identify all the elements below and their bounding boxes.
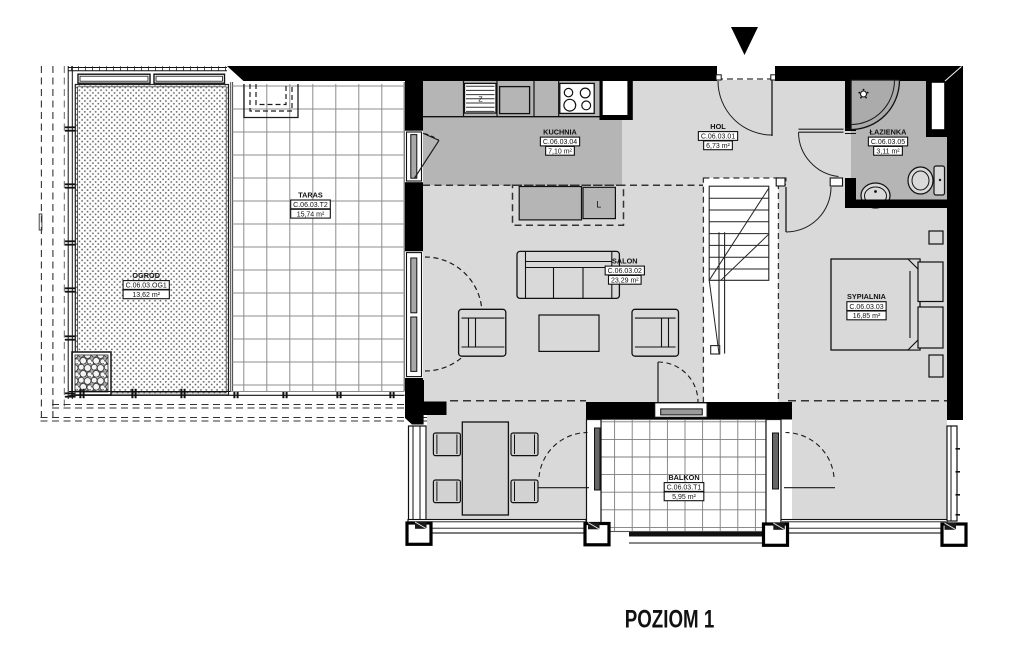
svg-text:C.06.03.OG1: C.06.03.OG1 <box>126 283 167 290</box>
svg-text:Z: Z <box>478 97 483 104</box>
svg-text:7,10 m²: 7,10 m² <box>548 149 572 156</box>
svg-text:C.06.03.T1: C.06.03.T1 <box>667 485 702 492</box>
svg-text:SALON: SALON <box>612 257 638 266</box>
svg-text:5,95 m²: 5,95 m² <box>672 494 696 501</box>
svg-text:3,11 m²: 3,11 m² <box>876 149 900 156</box>
svg-text:ŁAZIENKA: ŁAZIENKA <box>870 128 908 137</box>
svg-text:C.06.03.04: C.06.03.04 <box>543 139 577 146</box>
svg-text:13,62 m²: 13,62 m² <box>132 292 160 299</box>
svg-text:23,29 m²: 23,29 m² <box>611 278 639 285</box>
svg-text:6,73 m²: 6,73 m² <box>706 143 730 150</box>
svg-text:C.06.03.01: C.06.03.01 <box>701 134 735 141</box>
svg-text:16,85 m²: 16,85 m² <box>853 313 881 320</box>
svg-text:C.06.03.02: C.06.03.02 <box>608 268 642 275</box>
svg-text:L: L <box>596 200 601 210</box>
svg-text:C.06.03.05: C.06.03.05 <box>871 139 905 146</box>
svg-text:OGRÓD: OGRÓD <box>132 271 160 280</box>
svg-text:HOL: HOL <box>710 122 726 131</box>
svg-text:C.06.03.03: C.06.03.03 <box>849 304 883 311</box>
svg-text:SYPIALNIA: SYPIALNIA <box>847 292 887 301</box>
svg-text:KUCHNIA: KUCHNIA <box>543 128 577 137</box>
svg-text:POZIOM 1: POZIOM 1 <box>625 605 715 633</box>
svg-text:BALKON: BALKON <box>668 473 699 482</box>
svg-text:15,74 m²: 15,74 m² <box>297 211 325 218</box>
svg-text:TARAS: TARAS <box>298 190 323 199</box>
svg-text:C.06.03.T2: C.06.03.T2 <box>293 202 328 209</box>
